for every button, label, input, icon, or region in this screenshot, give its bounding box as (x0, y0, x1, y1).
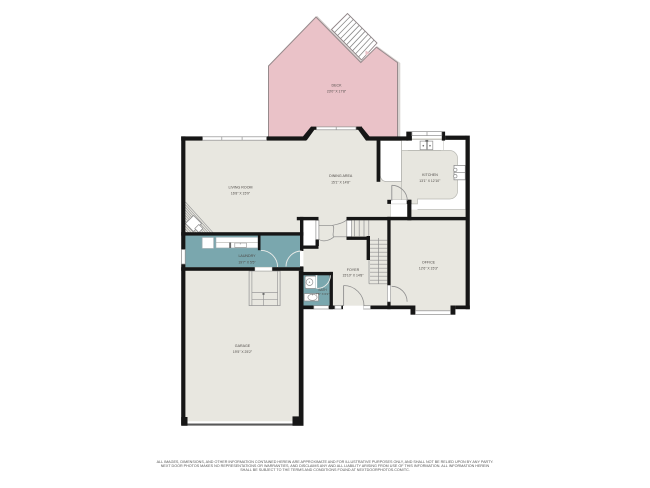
svg-text:23'0" X 17'8": 23'0" X 17'8" (327, 90, 347, 94)
svg-text:15'10" X 14'8": 15'10" X 14'8" (342, 273, 364, 277)
svg-text:GARAGE: GARAGE (235, 344, 251, 348)
svg-text:19'7" X 5'5": 19'7" X 5'5" (238, 260, 256, 264)
svg-text:LIVING ROOM: LIVING ROOM (229, 185, 253, 189)
svg-text:DECK: DECK (332, 84, 343, 88)
svg-text:19'5" X 25'2": 19'5" X 25'2" (233, 350, 253, 354)
svg-text:12'6" X 15'3": 12'6" X 15'3" (419, 267, 439, 271)
svg-text:SHALL BE SUBJECT TO THE TERMS: SHALL BE SUBJECT TO THE TERMS AND CONDIT… (240, 468, 410, 472)
svg-text:DINING AREA: DINING AREA (329, 174, 353, 178)
svg-text:OFFICE: OFFICE (422, 261, 436, 265)
svg-text:KITCHEN: KITCHEN (422, 173, 438, 177)
svg-text:15'1" X 14'8": 15'1" X 14'8" (331, 180, 351, 184)
svg-text:16'8" X 15'9": 16'8" X 15'9" (231, 192, 251, 196)
svg-text:13'1" X 12'10": 13'1" X 12'10" (419, 179, 441, 183)
svg-text:FOYER: FOYER (347, 268, 360, 272)
svg-text:7'5" X 6'2": 7'5" X 6'2" (316, 292, 330, 296)
svg-text:LAUNDRY: LAUNDRY (238, 254, 256, 258)
